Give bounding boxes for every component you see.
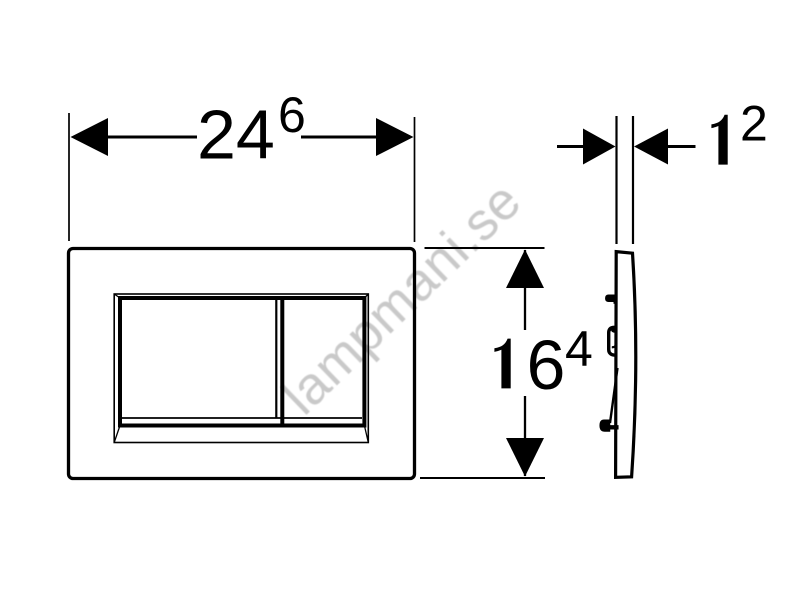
svg-text:24: 24 — [197, 96, 275, 174]
svg-text:2: 2 — [740, 96, 768, 152]
svg-text:4: 4 — [565, 321, 593, 377]
svg-text:6: 6 — [527, 326, 566, 404]
svg-text:6: 6 — [278, 87, 306, 143]
